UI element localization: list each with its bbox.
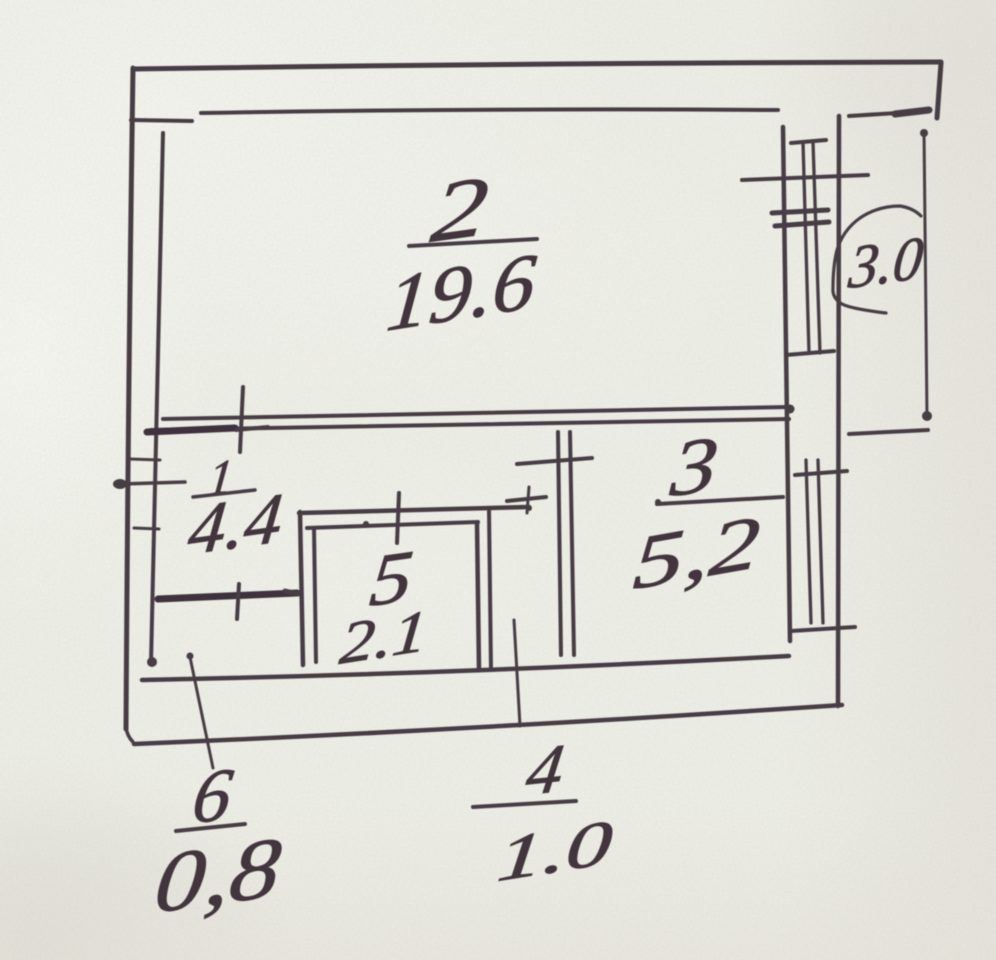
svg-text:4.4: 4.4 (185, 479, 286, 571)
svg-text:0,8: 0,8 (151, 820, 286, 932)
svg-text:3.0: 3.0 (845, 224, 926, 302)
